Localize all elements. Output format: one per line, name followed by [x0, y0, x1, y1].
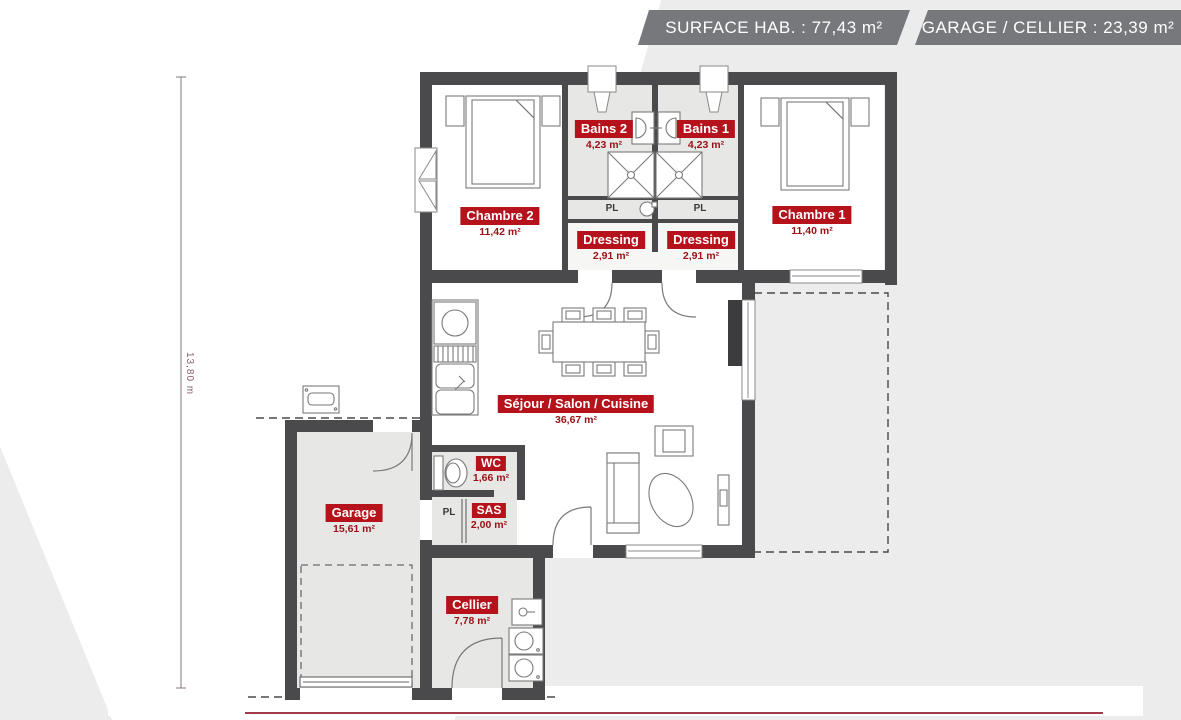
- closet-label-pl-sas: PL: [443, 507, 456, 518]
- room-area: 11,42 m²: [479, 226, 520, 238]
- terrace-outline: [754, 293, 888, 552]
- armchair-icon: [655, 426, 693, 456]
- closet-label-pl-left: PL: [606, 203, 619, 214]
- room-label-wc: WC 1,66 m²: [473, 456, 509, 484]
- room-area: 11,40 m²: [791, 225, 832, 237]
- room-label-sas: SAS 2,00 m²: [471, 503, 507, 531]
- room-label-bains2: Bains 2 4,23 m²: [575, 120, 633, 151]
- water-heater-icon: [512, 599, 542, 625]
- dimension-label-left: 13,80 m: [184, 352, 195, 395]
- garage-door-icon: [300, 677, 412, 687]
- kitchen-counter-icon: [432, 300, 478, 415]
- room-name: Bains 1: [677, 120, 735, 138]
- room-name: Dressing: [577, 231, 645, 249]
- room-label-cellier: Cellier 7,78 m²: [446, 596, 498, 627]
- room-area: 1,66 m²: [473, 472, 509, 484]
- window-chambre2-icon: [415, 148, 437, 212]
- room-label-sejour: Séjour / Salon / Cuisine 36,67 m²: [498, 395, 654, 426]
- room-area: 36,67 m²: [555, 414, 597, 426]
- room-name: WC: [476, 456, 506, 471]
- room-label-dressing-left: Dressing 2,91 m²: [577, 231, 645, 262]
- closet-label-pl-right: PL: [694, 203, 707, 214]
- room-area: 2,91 m²: [593, 250, 629, 262]
- window-chambre1-icon: [790, 270, 862, 283]
- room-name: SAS: [472, 503, 507, 518]
- washing-machine-icon: [509, 628, 543, 681]
- room-label-chambre1: Chambre 1 11,40 m²: [772, 206, 851, 237]
- room-area: 7,78 m²: [454, 615, 490, 627]
- room-name: Garage: [326, 504, 383, 522]
- floor-plan-drawing: [0, 0, 1181, 720]
- sofa-icon: [607, 453, 639, 533]
- room-area: 2,00 m²: [471, 519, 507, 531]
- page: SURFACE HAB. : 77,43 m² GARAGE / CELLIER…: [0, 0, 1181, 720]
- room-area: 4,23 m²: [688, 139, 724, 151]
- tv-unit-icon: [718, 475, 729, 525]
- room-label-garage: Garage 15,61 m²: [326, 504, 383, 535]
- room-name: Chambre 2: [460, 207, 539, 225]
- room-name: Cellier: [446, 596, 498, 614]
- room-area: 2,91 m²: [683, 250, 719, 262]
- room-label-chambre2: Chambre 2 11,42 m²: [460, 207, 539, 238]
- room-label-bains1: Bains 1 4,23 m²: [677, 120, 735, 151]
- room-name: Séjour / Salon / Cuisine: [498, 395, 654, 413]
- ac-unit-icon: [303, 386, 339, 413]
- window-sejour-bottom-icon: [626, 545, 702, 558]
- room-name: Bains 2: [575, 120, 633, 138]
- room-label-dressing-right: Dressing 2,91 m²: [667, 231, 735, 262]
- room-area: 4,23 m²: [586, 139, 622, 151]
- room-name: Dressing: [667, 231, 735, 249]
- room-name: Chambre 1: [772, 206, 851, 224]
- room-area: 15,61 m²: [333, 523, 375, 535]
- toilet-wc-icon: [434, 456, 467, 490]
